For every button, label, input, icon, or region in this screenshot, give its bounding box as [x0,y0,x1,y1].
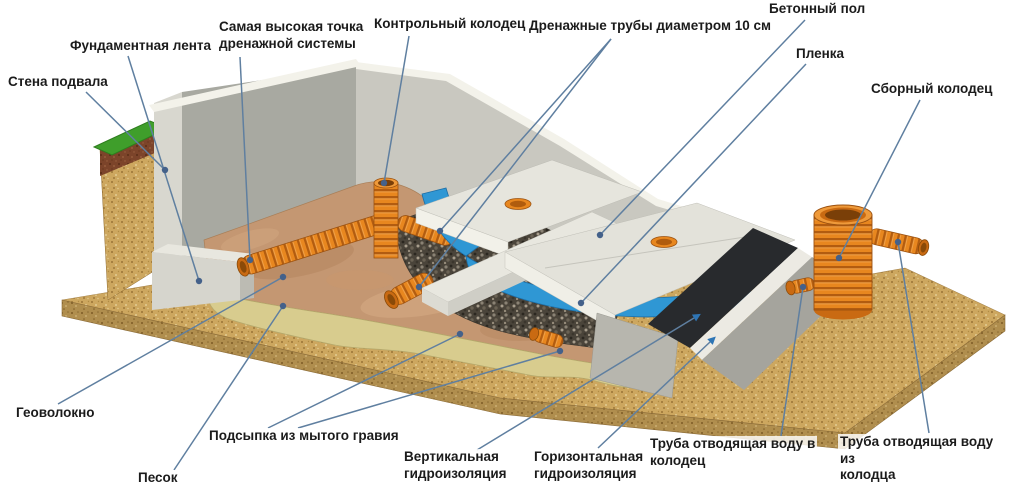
label-highest-point: Самая высокая точка дренажной системы [217,19,365,52]
foundation-footing [152,244,254,310]
collection-well [814,205,872,320]
control-well [374,178,398,258]
label-basement-wall: Стена подвала [6,74,110,91]
label-pipe-to-well: Труба отводящая воду в колодец [648,436,817,469]
label-collection-well: Сборный колодец [869,81,994,98]
label-pipe-from-well: Труба отводящая воду из колодца [838,434,1009,484]
label-foundation-strip: Фундаментная лента [68,38,213,55]
label-control-well: Контрольный колодец [372,16,527,33]
label-drain-pipes: Дренажные трубы диаметром 10 см [527,18,773,35]
drainage-diagram: Стена подвала Фундаментная лента Самая в… [0,0,1009,496]
leader-concrete-floor [600,20,805,235]
label-concrete-floor: Бетонный пол [767,1,867,18]
label-geotextile: Геоволокно [14,405,97,422]
label-sand: Песок [136,470,180,487]
drainage-illustration [0,0,1009,496]
label-horizontal-wpf: Горизонтальная гидроизоляция [532,449,645,482]
label-vertical-wpf: Вертикальная гидроизоляция [402,449,509,482]
label-gravel-bedding: Подсыпка из мытого гравия [207,428,401,445]
label-film: Пленка [794,46,846,63]
